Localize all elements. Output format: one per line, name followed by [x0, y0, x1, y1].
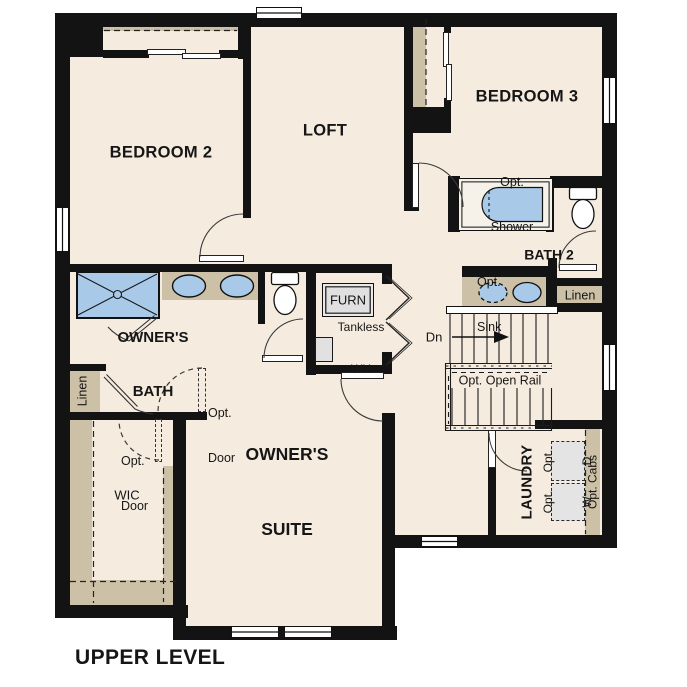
owners-bath-line1: OWNER'S: [117, 329, 188, 347]
label-opt-washer: Opt. W: [516, 491, 620, 514]
door-leaf: [559, 264, 597, 271]
opt-shower-line2: Shower: [491, 220, 533, 235]
opt-door2-line1: Opt.: [121, 454, 148, 469]
wall: [55, 605, 188, 618]
wall: [58, 364, 106, 371]
wall: [382, 264, 392, 284]
label-opt-open-rail: Opt. Open Rail: [459, 374, 542, 389]
wall: [557, 278, 602, 286]
page-title: UPPER LEVEL: [75, 646, 225, 670]
opt-sink-line2: Sink: [477, 320, 501, 335]
wall: [550, 176, 602, 188]
closet-bypass-door: [182, 53, 221, 59]
wall: [219, 50, 246, 58]
wall: [382, 413, 395, 640]
wic-shelf-left: [68, 420, 92, 605]
door-leaf: [199, 255, 244, 262]
room-label-loft: LOFT: [303, 122, 347, 141]
wall: [404, 107, 451, 133]
window: [284, 626, 332, 638]
wall: [243, 13, 251, 218]
room-label-bedroom2: BEDROOM 2: [110, 144, 213, 163]
opt-sink-line1: Opt.: [477, 275, 501, 290]
window: [56, 207, 69, 252]
window: [231, 626, 279, 638]
room-label-owners-bath: OWNER'S BATH: [117, 293, 188, 437]
label-opt-dryer: Opt. D: [516, 450, 620, 473]
tankless-water-heater: [315, 337, 333, 362]
opt-door1-line1: Opt.: [208, 406, 235, 421]
room-label-owners-suite: OWNER'S SUITE: [246, 392, 329, 592]
owners-suite-line2: SUITE: [246, 517, 329, 542]
door-leaf: [488, 430, 496, 468]
label-linen-bath2: Linen: [565, 289, 596, 304]
floor-plan: BEDROOM 2 LOFT BEDROOM 3 OWNER'S BATH BA…: [0, 0, 687, 687]
wall: [55, 13, 70, 618]
wall: [382, 535, 617, 548]
owners-suite-line1: OWNER'S: [246, 442, 329, 467]
opt-washer-line1: Opt.: [542, 491, 555, 514]
bedroom3-closet-shelf: [413, 18, 426, 107]
wall: [66, 13, 103, 57]
wall: [258, 272, 265, 324]
label-opt-sink: Opt. Sink: [477, 245, 501, 365]
room-label-bedroom3: BEDROOM 3: [476, 88, 579, 107]
opt-dryer-line1: Opt.: [542, 450, 555, 473]
opt-shower-line1: Opt.: [491, 175, 533, 190]
wall: [488, 466, 496, 535]
window: [256, 7, 302, 19]
window: [421, 536, 458, 547]
window: [603, 344, 616, 391]
wall: [548, 303, 617, 312]
label-opt-door-2: Opt. Door: [121, 424, 148, 544]
stair-head-rail: [446, 306, 558, 314]
tankless-line2: WH: [338, 362, 385, 376]
wall: [535, 420, 617, 429]
wall: [103, 50, 149, 58]
tankless-line1: Tankless: [338, 320, 385, 334]
label-opt-door-1: Opt. Door: [208, 376, 235, 496]
optional-door-leaf: [198, 368, 206, 412]
wall: [444, 13, 451, 33]
door-leaf: [262, 355, 303, 362]
closet-bypass-door: [446, 64, 452, 101]
wall: [66, 13, 612, 27]
closet-bypass-door: [147, 49, 186, 55]
label-linen-owners-bath: Linen: [76, 376, 91, 407]
window: [603, 77, 616, 124]
closet-bypass-door: [443, 32, 449, 67]
label-tankless-wh: Tankless WH: [338, 292, 385, 404]
bath2-vanity: [462, 277, 548, 308]
opt-door1-line2: Door: [208, 451, 235, 466]
label-stairs-down: Dn: [426, 330, 443, 345]
wic-shelf-bottom: [68, 580, 180, 605]
wall: [306, 264, 392, 273]
opt-door2-line2: Door: [121, 499, 148, 514]
owners-bath-line2: BATH: [117, 383, 188, 401]
label-opt-cabs: Opt. Cabs: [586, 455, 601, 509]
door-leaf: [412, 163, 419, 208]
